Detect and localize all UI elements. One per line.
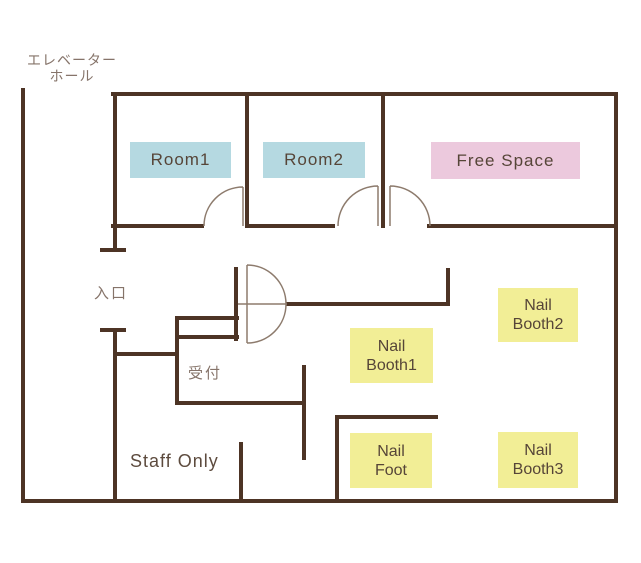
- room2-door-swing-icon: [338, 186, 378, 226]
- room2-label: Room2: [284, 150, 344, 170]
- nail-booth3-box: Nail Booth3: [498, 432, 578, 488]
- entrance-door-swing-icon: [238, 265, 287, 343]
- nail-booth1-box: Nail Booth1: [350, 328, 433, 383]
- nail-booth3-line1: Nail: [524, 441, 552, 460]
- nail-booth2-box: Nail Booth2: [498, 288, 578, 342]
- free-space-label: Free Space: [457, 151, 555, 171]
- nail-booth3-line2: Booth3: [513, 460, 564, 479]
- nail-booth2-line1: Nail: [524, 296, 552, 315]
- nail-booth1-line2: Booth1: [366, 356, 417, 375]
- elevator-hall-line2: ホール: [22, 68, 122, 84]
- entrance-label: 入口: [94, 282, 128, 303]
- room1-label: Room1: [151, 150, 211, 170]
- floor-plan: エレベーター ホール 入口 受付 Staff Only Room1 Room2 …: [0, 0, 641, 563]
- elevator-hall-line1: エレベーター: [22, 52, 122, 68]
- room1-door-swing-icon: [204, 187, 243, 226]
- wall-hallway: [286, 268, 448, 306]
- nail-foot-line2: Foot: [375, 461, 407, 480]
- nail-foot-box: Nail Foot: [350, 433, 432, 488]
- reception-label: 受付: [188, 362, 222, 383]
- free-space-box: Free Space: [431, 142, 580, 179]
- nail-booth2-line2: Booth2: [513, 315, 564, 334]
- nail-foot-line1: Nail: [377, 442, 405, 461]
- staff-only-label: Staff Only: [130, 451, 219, 472]
- elevator-hall-label: エレベーター ホール: [22, 52, 122, 84]
- wall-left-lower: [100, 330, 179, 501]
- room2-box: Room2: [263, 142, 365, 178]
- room1-box: Room1: [130, 142, 231, 178]
- free-space-door-swing-icon: [390, 186, 430, 226]
- nail-booth1-line1: Nail: [378, 337, 406, 356]
